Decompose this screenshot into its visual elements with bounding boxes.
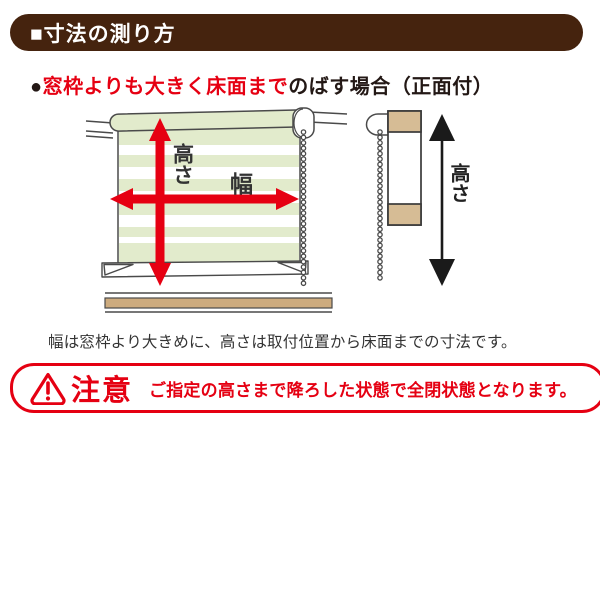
- warning-triangle-icon: [29, 371, 67, 405]
- frame-bottom-block: [388, 204, 421, 225]
- measure-case-heading: ●窓枠よりも大きく床面までのばす場合（正面付）: [30, 70, 493, 99]
- roller-bar: [110, 110, 310, 132]
- measurement-diagram: 高さ 幅 高さ: [0, 105, 600, 320]
- floor-line: [105, 293, 332, 312]
- caption-text: 幅は窓枠より大きめに、高さは取付位置から床面までの寸法です。: [48, 330, 517, 352]
- page-title: ■寸法の測り方: [10, 18, 176, 48]
- heading-rest-text: のばす場合（正面付）: [288, 76, 493, 98]
- bullet-icon: ●: [30, 76, 43, 98]
- side-view-diagram: 高さ: [367, 111, 471, 286]
- heading-highlight-text: 窓枠よりも大きく床面まで: [43, 76, 289, 98]
- frame-top-block: [388, 111, 421, 132]
- bottom-rail: [102, 261, 308, 277]
- section-header-bar: ■寸法の測り方: [10, 14, 583, 51]
- height-label-side: 高さ: [447, 162, 470, 203]
- warning-label: 注意: [71, 367, 133, 409]
- height-label: 高さ: [171, 142, 195, 185]
- mount-rail-left: [86, 121, 113, 138]
- warning-message: ご指定の高さまで降ろした状態で全閉状態となります。: [149, 376, 577, 401]
- window-frame-side: [388, 111, 421, 225]
- front-view-diagram: 高さ 幅: [86, 108, 347, 312]
- width-label: 幅: [230, 171, 253, 197]
- warning-box: 注意 ご指定の高さまで降ろした状態で全閉状態となります。: [10, 363, 600, 413]
